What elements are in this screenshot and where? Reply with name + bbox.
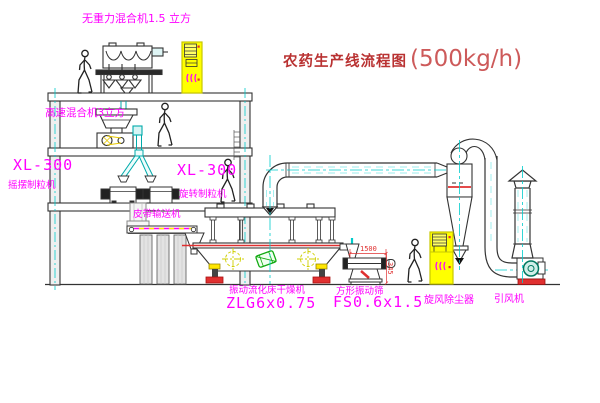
label-cyclone: 旋风除尘器 — [424, 296, 474, 306]
label-granulator-mid-name: 旋转制粒机 — [179, 190, 227, 200]
downpipe — [485, 156, 517, 277]
label-high-speed-mixer: 高速混合机3立方 — [45, 108, 125, 119]
granulator-feed-funnels — [118, 176, 156, 182]
granulator-left — [101, 187, 145, 203]
label-granulator-mid-model: XL-300 — [177, 163, 237, 178]
title-text: 农药生产线流程图 — [283, 50, 407, 71]
label-granulator-left-model: XL-300 — [13, 158, 73, 173]
induced-draft-fan — [517, 258, 545, 285]
title-capacity: (500kg/h) — [410, 46, 522, 72]
control-cabinet-ground — [430, 232, 453, 284]
dimension-sieve-length: 1500 — [360, 246, 377, 253]
cyclone-separator — [447, 139, 497, 265]
person-icon — [78, 50, 92, 93]
exhaust-duct — [263, 163, 447, 215]
label-granulator-left-name: 摇摆制粒机 — [8, 181, 56, 191]
label-zero-gravity-mixer: 无重力混合机1.5 立方 — [82, 13, 191, 24]
label-sieve-model: FS0.6x1.5 — [333, 295, 423, 310]
label-dryer-model: ZLG6x0.75 — [226, 296, 316, 311]
flow-diagram-canvas: 农药生产线流程图 (500kg/h) 无重力混合机1.5 立方 高速混合机3立方… — [0, 0, 600, 403]
granulator-right — [143, 187, 179, 203]
person-icon — [408, 239, 422, 282]
person-icon — [158, 103, 172, 146]
support-columns — [140, 235, 186, 284]
belt-conveyor — [127, 226, 197, 234]
label-belt-conveyor: 皮带输送机 — [133, 210, 181, 220]
dimension-sieve-height: 345 — [386, 262, 393, 275]
diagram-title: 农药生产线流程图 (500kg/h) — [283, 46, 522, 72]
zero-gravity-mixer — [96, 43, 168, 93]
control-cabinet-roof — [182, 42, 202, 93]
label-fan: 引风机 — [494, 295, 524, 305]
